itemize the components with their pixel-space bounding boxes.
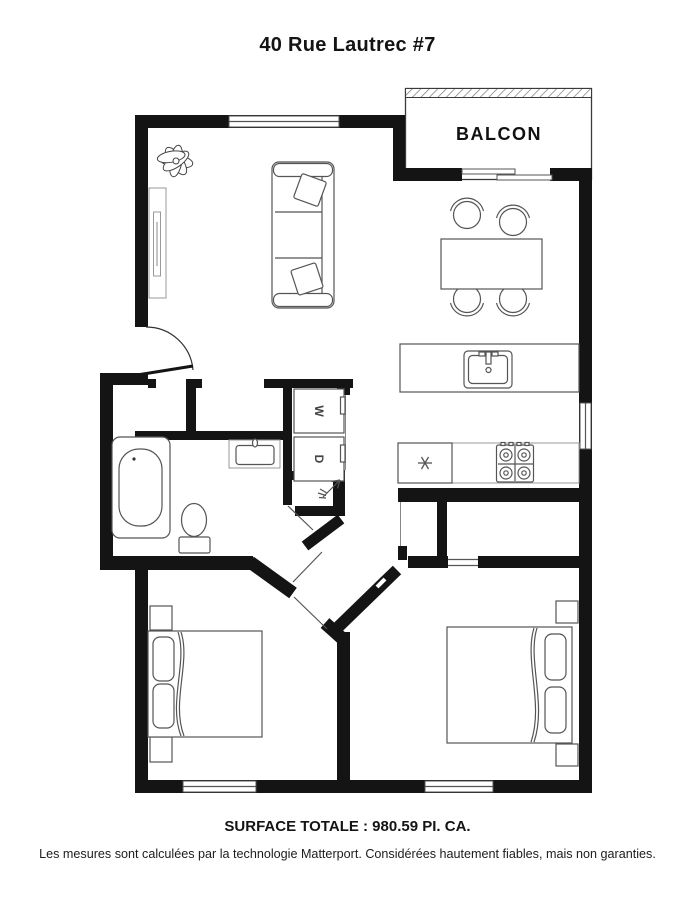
toilet — [179, 504, 210, 554]
nightstand — [150, 737, 172, 762]
washer-label: W — [312, 405, 326, 417]
dryer: D — [294, 437, 345, 481]
stove — [497, 443, 534, 483]
plant — [156, 144, 193, 178]
fridge — [398, 443, 452, 483]
nightstand — [556, 601, 578, 623]
nightstand — [556, 744, 578, 766]
dining-chair — [497, 205, 530, 235]
washer: W — [294, 389, 345, 433]
dryer-label: D — [312, 455, 326, 464]
disclaimer-text: Les mesures sont calculées par la techno… — [0, 847, 695, 861]
bedroom1-window — [183, 781, 256, 792]
kitchen-island — [400, 344, 579, 392]
entry-door — [137, 327, 193, 375]
vanity-sink — [229, 439, 280, 468]
dining-set — [441, 198, 542, 316]
nightstand — [150, 606, 172, 630]
tv-console — [149, 188, 166, 298]
living-room-window — [229, 116, 339, 127]
dining-chair — [497, 286, 530, 316]
bed-1 — [148, 606, 262, 762]
balcony-label: BALCON — [456, 124, 542, 144]
dining-table — [441, 239, 542, 289]
bedroom2-window — [425, 781, 493, 792]
bathtub — [112, 437, 170, 538]
kitchen-window — [580, 403, 591, 449]
kitchen-sink — [464, 351, 512, 388]
bed-2 — [447, 601, 578, 766]
dining-chair — [451, 286, 484, 316]
hall-doors — [288, 506, 327, 629]
floor-plan: BALCON — [0, 0, 695, 900]
dining-chair — [451, 198, 484, 228]
sofa — [272, 162, 334, 308]
total-area-label: SURFACE TOTALE : 980.59 PI. CA. — [0, 818, 695, 835]
balcony: BALCON — [406, 89, 592, 180]
